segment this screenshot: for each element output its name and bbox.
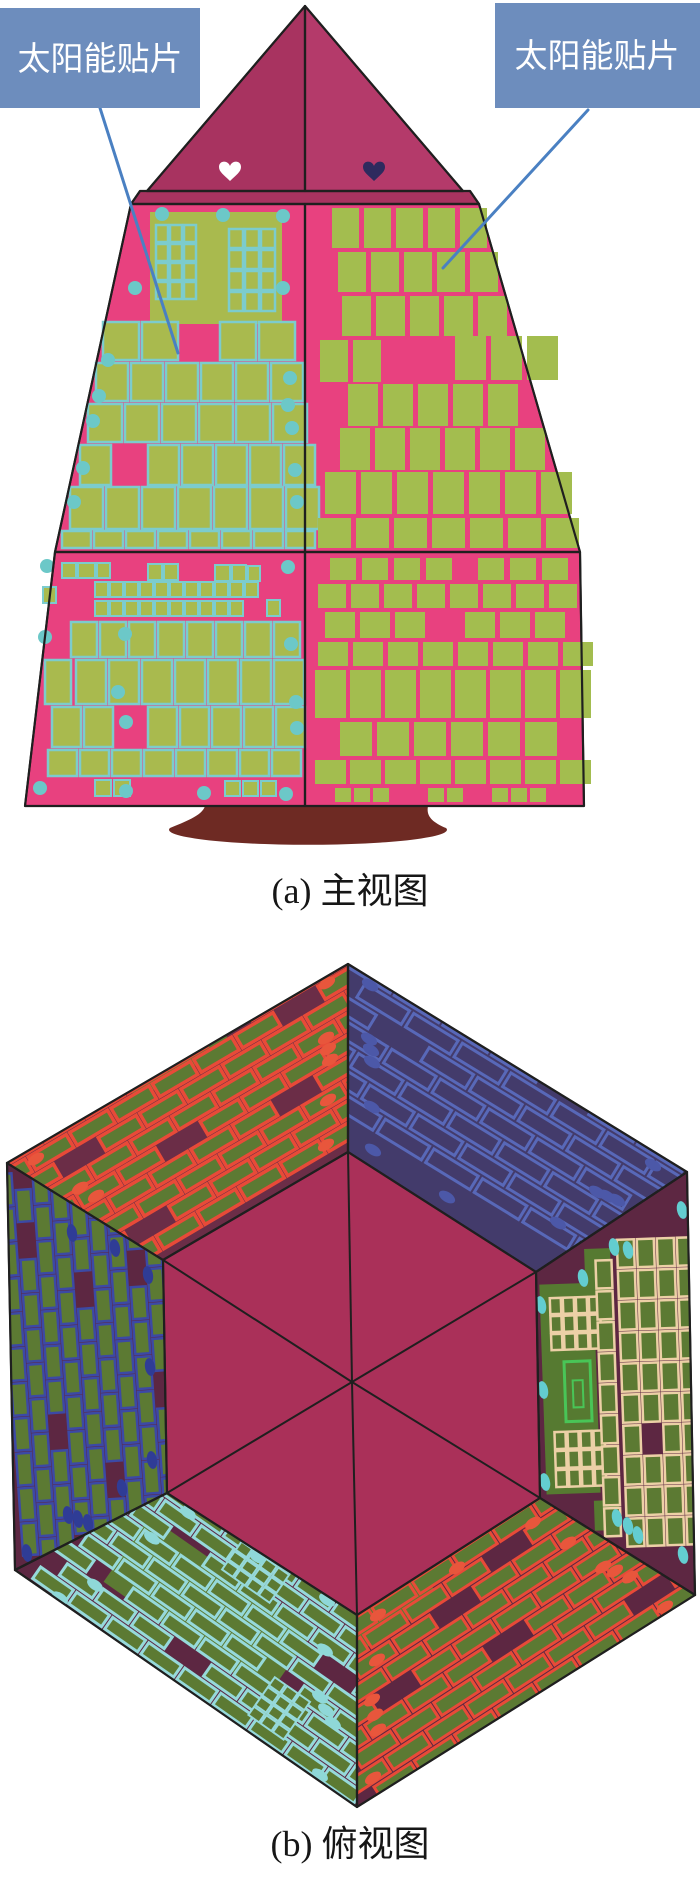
satellite-top-view-drawing	[0, 930, 700, 1815]
callout-label-left: 太阳能贴片	[18, 41, 183, 78]
callout-label-right: 太阳能贴片	[515, 38, 680, 75]
satellite-front-view-drawing: 太阳能贴片 太阳能贴片	[0, 0, 700, 860]
base-pedestal	[169, 806, 447, 845]
caption-front-view: (a) 主视图	[0, 864, 700, 920]
panel-top-view: (b) 俯视图	[0, 930, 700, 1875]
figure-page: 太阳能贴片 太阳能贴片 (a) 主视图	[0, 0, 700, 1875]
pyramid-base-band	[131, 191, 479, 204]
caption-top-view: (b) 俯视图	[0, 1817, 700, 1875]
panel-front-view: 太阳能贴片 太阳能贴片 (a) 主视图	[0, 0, 700, 920]
callout-leader-right	[443, 110, 588, 268]
